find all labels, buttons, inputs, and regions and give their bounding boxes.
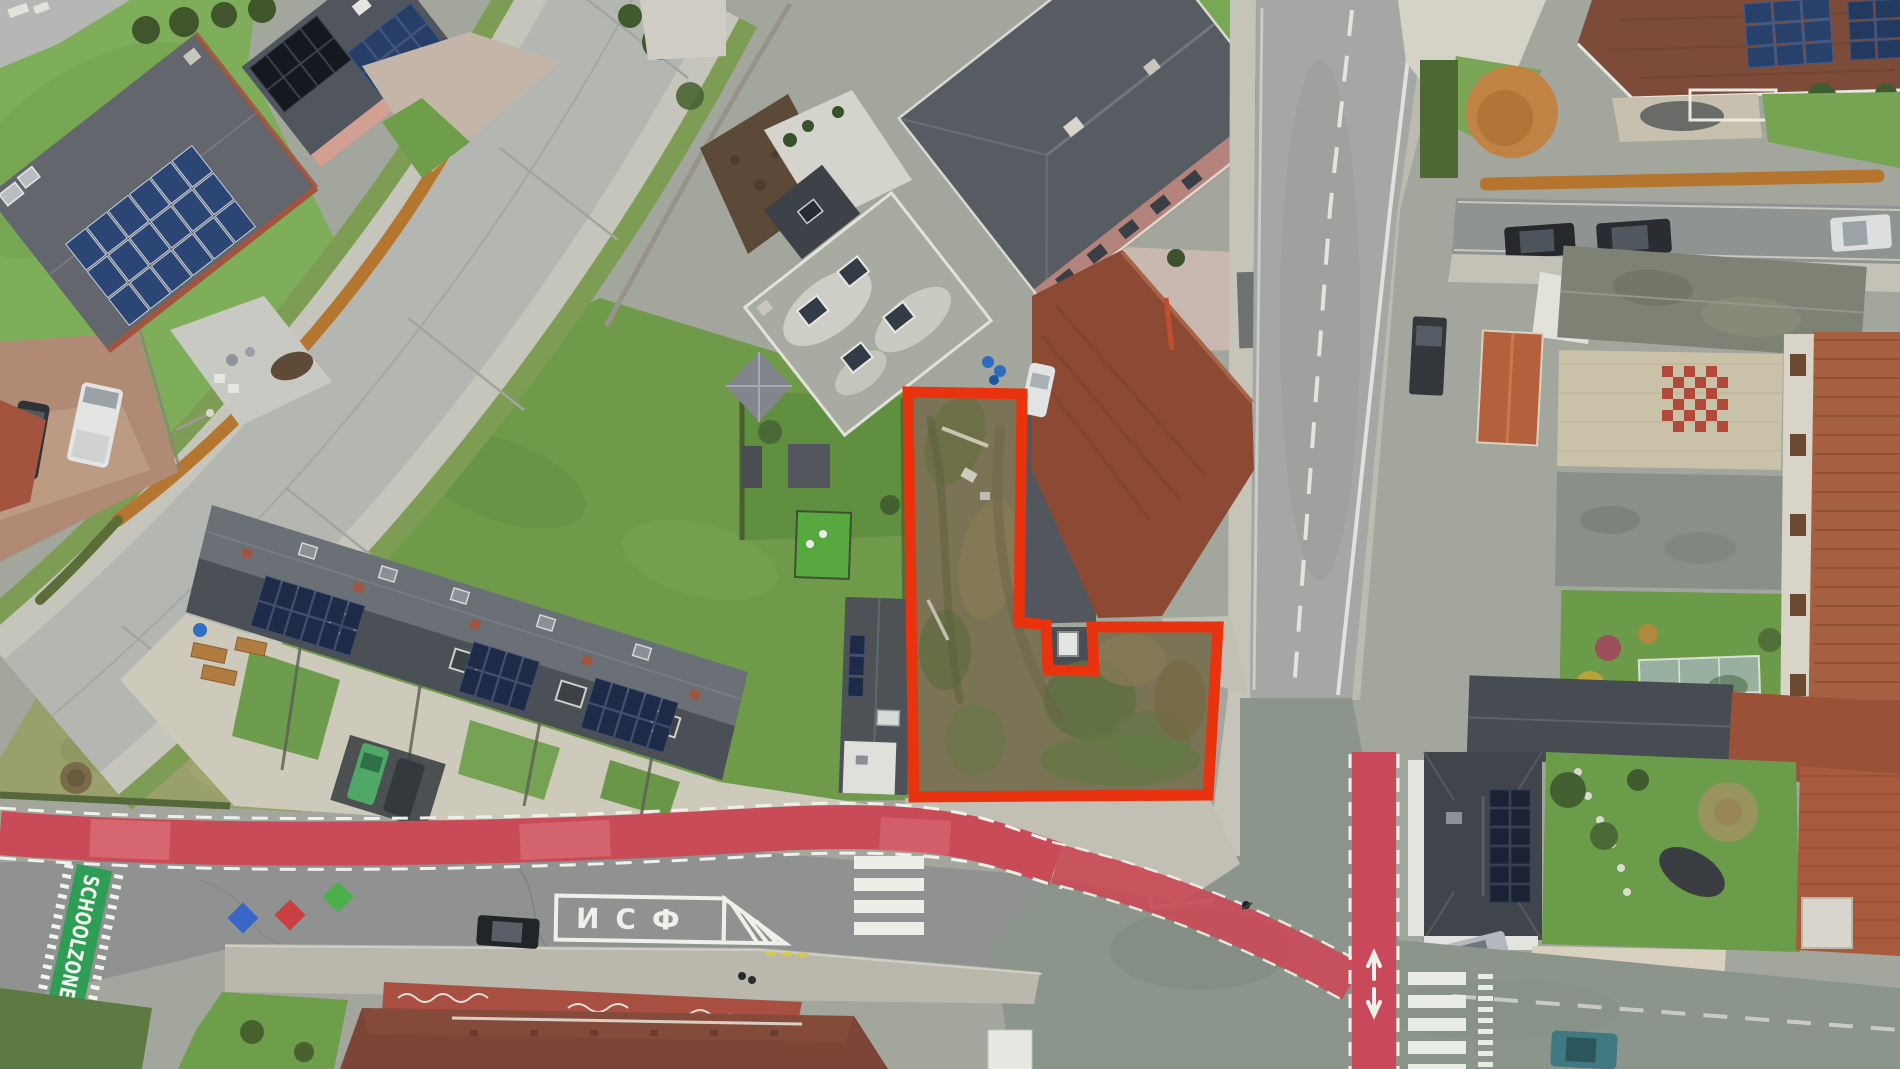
bike-lane-worn: [520, 838, 610, 842]
patio-furniture: [226, 354, 238, 366]
bush: [1758, 628, 1782, 652]
checker-patio-cell: [1695, 399, 1706, 410]
teal-car: [1550, 1030, 1618, 1069]
street-lamp-head: [206, 409, 214, 417]
grid-cell: [1805, 42, 1833, 64]
dark-car-cobbles: [1409, 316, 1447, 396]
tree-canopy: [618, 4, 642, 28]
solar-array-b-cell: [1490, 885, 1509, 902]
rect: [491, 921, 522, 943]
autumn-hedge-east: [1486, 176, 1878, 184]
checker-patio-cell: [1673, 421, 1684, 432]
driveway-bush: [1167, 249, 1185, 267]
rect: [1611, 225, 1649, 251]
yield-teeth-east: [1478, 974, 1493, 1067]
solar-array-b-cell: [1511, 828, 1530, 845]
boxwood: [802, 120, 814, 132]
plot-veg: [1040, 734, 1200, 786]
zebra-crossing-school-item: [854, 900, 924, 913]
notch-skylight: [1058, 632, 1078, 656]
grid: [1744, 0, 1833, 68]
road-worn: [1280, 60, 1360, 580]
plot-veg: [919, 610, 971, 690]
plot-veg: [1094, 634, 1166, 686]
zebra-crossing-school-item: [854, 856, 924, 869]
bike-lane-worn: [880, 834, 950, 838]
tree-canopy: [1550, 772, 1586, 808]
tree-canopy: [1627, 769, 1649, 791]
blue-tub: [193, 623, 207, 637]
checker-patio-cell: [1695, 377, 1706, 388]
checker-patio-cell: [1706, 410, 1717, 421]
roof-vents-item: [470, 1030, 478, 1036]
yellow-dashes-item: [798, 953, 808, 957]
zebra-crossing-school-item: [854, 922, 924, 935]
solar-array-b-cell: [1490, 847, 1509, 864]
path-stone: [1617, 864, 1625, 872]
checker-patio-cell: [1684, 366, 1695, 377]
checker-patio-cell: [1706, 366, 1717, 377]
hedge-bush: [169, 7, 199, 37]
path-stone: [1623, 888, 1631, 896]
brick-barn-east: [1808, 332, 1900, 756]
bike-lane-worn: [90, 838, 170, 841]
gravel-blotch: [1664, 532, 1736, 564]
solar-array-b-cell: [1490, 866, 1509, 883]
white-chair: [228, 384, 239, 393]
hedge-bush: [211, 2, 237, 28]
grid-cell: [1802, 0, 1830, 20]
checker-patio-cell: [1684, 410, 1695, 421]
grid-cell: [1876, 19, 1900, 38]
brown-shutters-item: [1790, 354, 1806, 376]
mulch-dot: [730, 155, 740, 165]
checker-patio-cell: [1717, 377, 1728, 388]
aerial-photo: ИСФSCHOOLZONE: [0, 0, 1900, 1069]
blue-barrel: [982, 356, 994, 368]
roof-vents-item: [710, 1030, 718, 1036]
solar-array-b-cell: [1490, 809, 1509, 826]
brown-shutters-item: [1790, 514, 1806, 536]
checker-patio-cell: [1706, 388, 1717, 399]
yield-teeth-east-item: [1478, 974, 1493, 979]
plot-veg: [945, 704, 1005, 776]
white-chair: [214, 374, 225, 383]
brown-shutters-item: [1790, 434, 1806, 456]
zebra-crossing-east-item: [1408, 1064, 1466, 1069]
roof-vents-item: [770, 1030, 778, 1036]
checker-patio-cell: [1717, 399, 1728, 410]
solar-array-b-cell: [1511, 790, 1530, 807]
zebra-crossing-east-item: [1408, 1041, 1466, 1054]
orange-tile-house: [1477, 331, 1543, 446]
mulch-dot: [754, 179, 766, 191]
roof-vents-item: [590, 1030, 598, 1036]
grid-cell: [1848, 1, 1874, 20]
brown-shutters-item: [1790, 674, 1806, 696]
grid-cell: [1746, 24, 1774, 46]
checker-patio-cell: [1684, 388, 1695, 399]
marking-glyphs: ИСФ: [576, 902, 696, 937]
garden-shed: [788, 444, 830, 488]
solar-house-b-wall: [1408, 760, 1424, 936]
solar-array-small-cell: [848, 677, 864, 697]
rooflight: [1446, 812, 1462, 824]
checker-patio-cell: [1662, 410, 1673, 421]
roof-vents-item: [530, 1030, 538, 1036]
white-shed: [640, 0, 726, 60]
plot-veg: [1154, 660, 1206, 740]
skylight: [877, 710, 900, 726]
pedestrian-dot: [748, 976, 756, 984]
yield-teeth-east-item: [1478, 1051, 1493, 1056]
boxwood: [783, 133, 797, 147]
school-bush: [294, 1042, 314, 1062]
solar-array-b-cell: [1490, 828, 1509, 845]
yield-teeth-east-item: [1478, 1029, 1493, 1034]
lawn-bush: [758, 420, 782, 444]
zebra-crossing-east-item: [1408, 972, 1466, 985]
solar-array-small-cell: [849, 635, 865, 655]
tree-canopy: [1590, 822, 1618, 850]
solar-array-tr: [1744, 0, 1833, 68]
grid-cell: [1850, 41, 1876, 60]
white-truck: [988, 1030, 1032, 1069]
yield-teeth-east-item: [1478, 996, 1493, 1001]
autumn-tree-core: [1477, 90, 1533, 146]
tree-canopy: [676, 82, 704, 110]
checker-patio-cell: [1717, 421, 1728, 432]
yellow-dashes-item: [782, 952, 792, 956]
solar-array-b-cell: [1490, 790, 1509, 807]
flower-bush: [1595, 635, 1621, 661]
hedge-vertical: [1420, 60, 1458, 178]
boxwood: [832, 106, 844, 118]
solar-array-b-cell: [1511, 866, 1530, 883]
brown-shutters-item: [1790, 594, 1806, 616]
blue-barrel: [989, 375, 999, 385]
solar-array-b-cell: [1511, 847, 1530, 864]
blue-barrel: [994, 365, 1006, 377]
artificial-turf: [795, 511, 851, 579]
grid-cell: [1774, 22, 1802, 44]
rect: [1519, 229, 1554, 253]
hedge-bush: [132, 16, 160, 44]
aerial-photo-canvas: ИСФSCHOOLZONE: [0, 0, 1900, 1069]
dead-bush-core: [67, 769, 85, 787]
gravel-yard: [1555, 472, 1783, 590]
rect: [988, 1030, 1032, 1069]
debris: [980, 492, 990, 500]
checker-patio: [1673, 377, 1728, 432]
grid-cell: [1744, 2, 1772, 24]
rect: [1565, 1037, 1596, 1063]
school-bush: [240, 1020, 264, 1044]
grid-cell: [1803, 20, 1831, 42]
solar-array-b-cell: [1511, 885, 1530, 902]
yield-teeth-east-item: [1478, 985, 1493, 990]
roof-vents-item: [650, 1030, 658, 1036]
checker-patio-cell: [1662, 388, 1673, 399]
zebra-crossing-east-item: [1408, 995, 1466, 1008]
grid-cell: [1875, 0, 1900, 19]
patio-furniture: [245, 347, 255, 357]
grid-cell: [1747, 46, 1775, 68]
yellow-dashes-item: [766, 952, 776, 956]
flower-bush: [1638, 624, 1658, 644]
checker-patio-cell: [1673, 399, 1684, 410]
white-table: [819, 530, 827, 538]
yield-teeth-east-item: [1478, 1040, 1493, 1045]
grid-cell: [1877, 39, 1900, 58]
veranda: [1802, 898, 1852, 948]
zebra-crossing-east-item: [1408, 1018, 1466, 1031]
rect: [1842, 221, 1868, 247]
grid-cell: [1773, 0, 1801, 22]
end-terrace-house: [839, 597, 914, 795]
solar-array-b-cell: [1511, 809, 1530, 826]
zebra-crossing-school-item: [854, 878, 924, 891]
pedestrian-dot: [738, 972, 746, 980]
white-gable: [843, 741, 897, 795]
white-table: [806, 540, 814, 548]
bare-tree-core: [1714, 798, 1742, 826]
pebble-bed: [1640, 101, 1724, 131]
checker-patio-cell: [1695, 421, 1706, 432]
yield-teeth-east-item: [1478, 1018, 1493, 1023]
yield-teeth-east-item: [1478, 1007, 1493, 1012]
checker-patio: [1662, 366, 1717, 421]
window: [856, 755, 868, 764]
gravel-blotch: [1580, 506, 1640, 534]
bike-crossing-red: [1352, 752, 1396, 1069]
rect: [1416, 325, 1443, 346]
solar-array-small-cell: [849, 656, 865, 676]
lawn-bush: [880, 495, 900, 515]
checker-patio-cell: [1662, 366, 1673, 377]
white-car: [1830, 214, 1892, 252]
checker-patio-cell: [1673, 377, 1684, 388]
black-parked-car: [476, 915, 540, 949]
yield-teeth-east-item: [1478, 1062, 1493, 1067]
grid-cell: [1849, 21, 1875, 40]
garden-shed: [742, 446, 762, 488]
solar-array-small: [848, 635, 865, 696]
grid-cell: [1776, 44, 1804, 66]
